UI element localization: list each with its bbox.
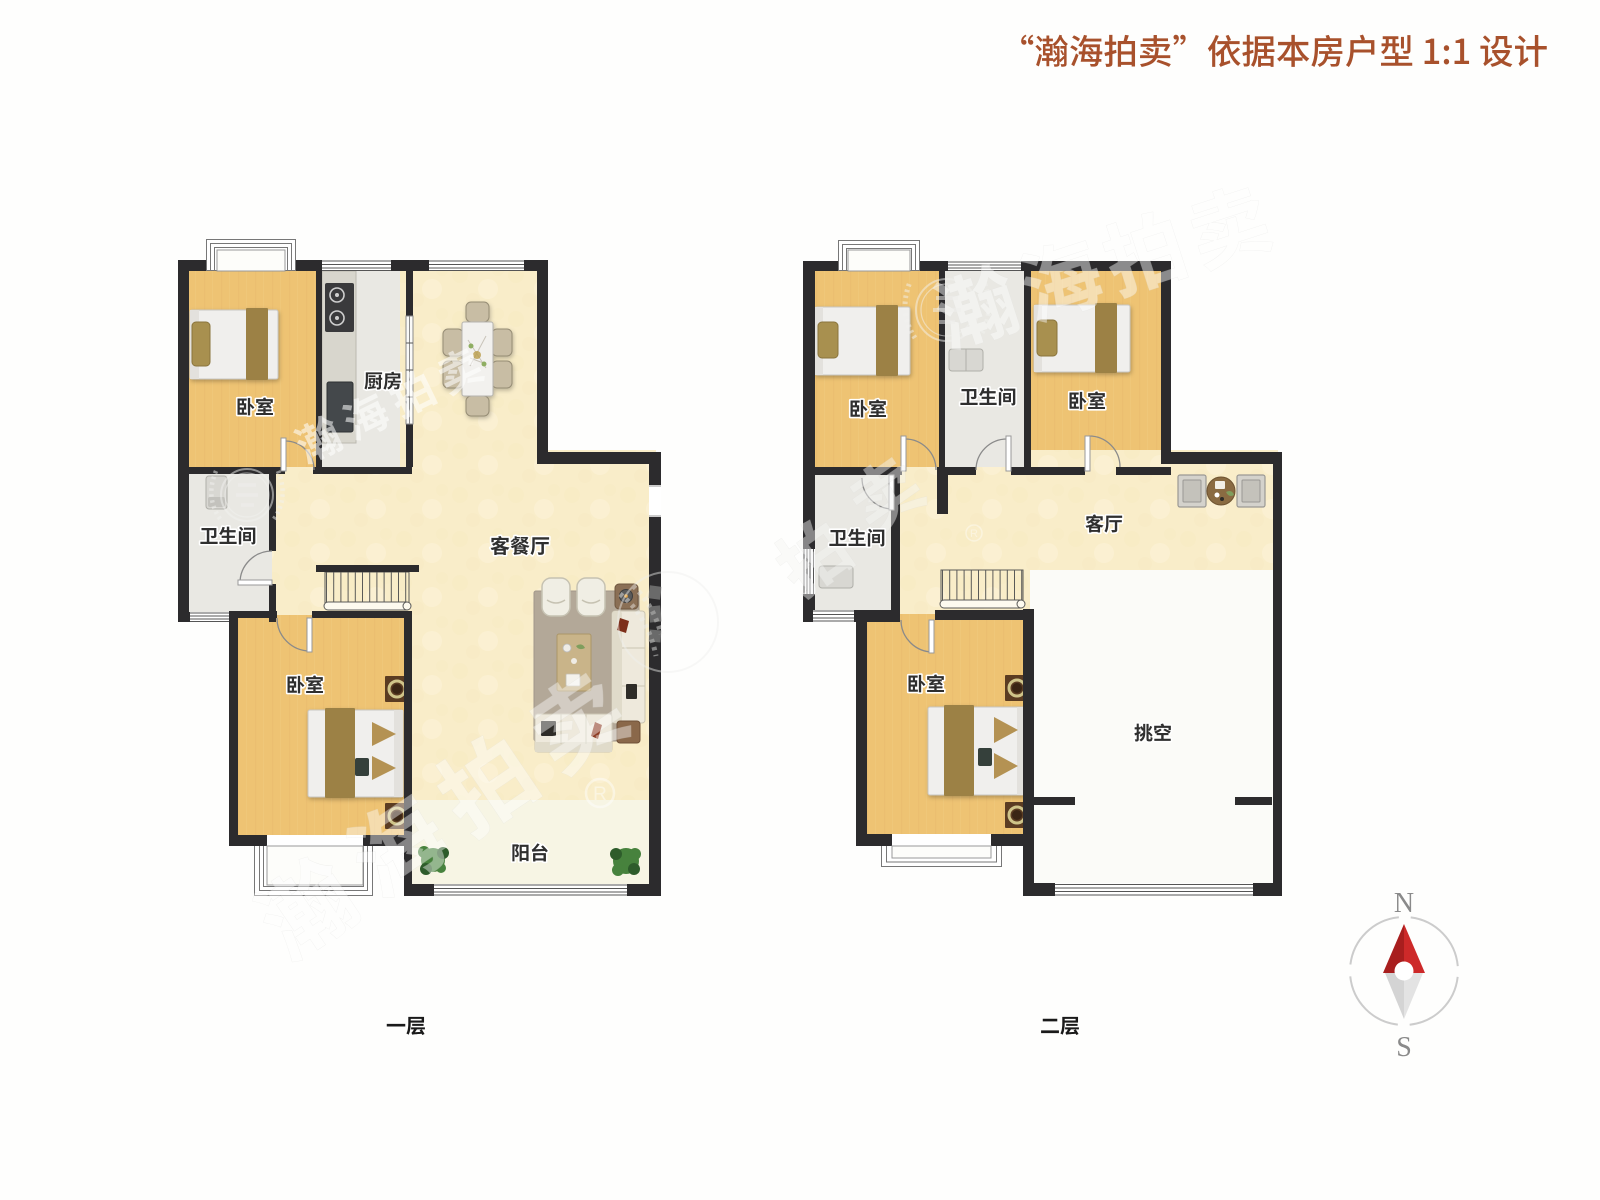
svg-text:R: R [593, 784, 607, 805]
svg-text:S: S [1396, 1032, 1412, 1063]
svg-text:N: N [1394, 888, 1414, 919]
svg-text:R: R [970, 528, 978, 540]
